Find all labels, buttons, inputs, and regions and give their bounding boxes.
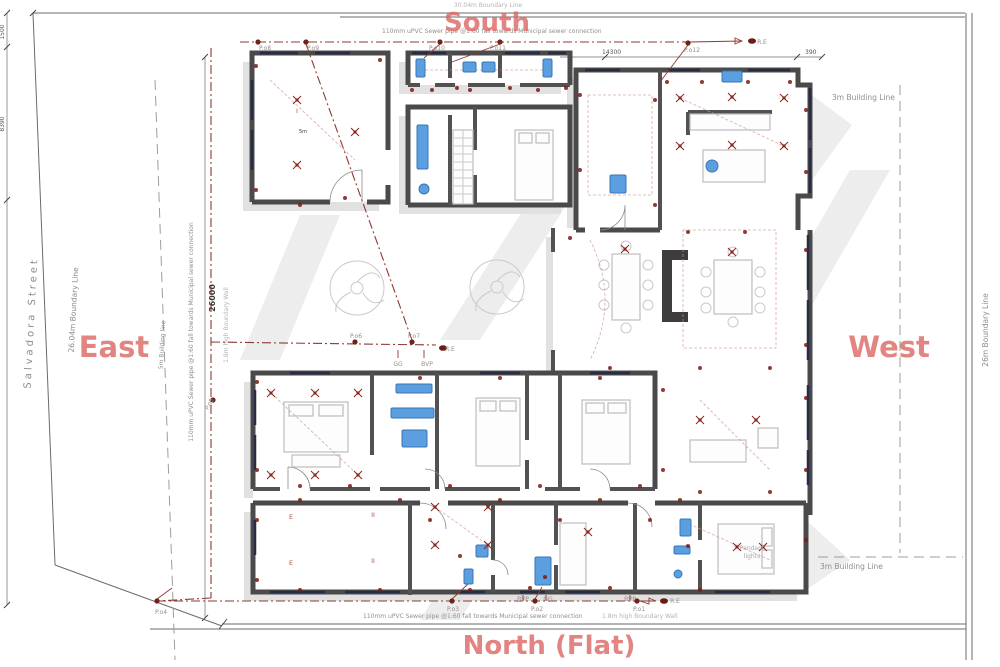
sewer-junction-dot [255,39,260,44]
building-line-left-label: 5m Building line [158,320,168,369]
outlet-symbol [255,518,259,522]
outlet-symbol [698,366,702,370]
outlet-symbol [528,586,532,590]
outlet-symbol [653,203,657,207]
plumbing-fixture [419,184,429,194]
outlet-symbol [430,88,434,92]
outlet-symbol [598,376,602,380]
outlet-symbol [804,396,808,400]
plumbing-fixture [706,160,718,172]
outlet-symbol [804,538,808,542]
compass-north-label: North (Flat) [463,631,636,661]
sewer-junction-dot [685,40,690,45]
armchair [758,428,778,448]
outlet-symbol [458,554,462,558]
plumbing-fixture [680,519,691,536]
sewer-point-label: GG [543,596,553,603]
dining-table [612,254,640,320]
plumbing-fixture [396,384,432,393]
outlet-symbol [255,468,259,472]
sewer-point-label: GG [393,361,403,368]
outlet-symbol [648,518,652,522]
outlet-symbol [678,498,682,502]
sewer-junction-dot [154,598,159,603]
sewer-junction-dot [352,339,357,344]
outlet-symbol [538,484,542,488]
outlet-symbol [661,388,665,392]
sewer-point-label: P.o10 [429,45,445,52]
outlet-symbol [638,484,642,488]
sewer-junction-dot [497,39,502,44]
outlet-symbol [686,544,690,548]
sewer-point-label: R.E [445,346,455,353]
outlet-symbol [468,588,472,592]
plumbing-fixture [463,62,476,72]
staircase [453,130,473,204]
boundary-right-label: 26m Boundary Line [981,293,990,367]
outlet-symbol [428,518,432,522]
outlet-symbol [254,188,258,192]
outlet-symbol [468,88,472,92]
outlet-symbol [558,518,562,522]
sewer-junction-dot [409,339,414,344]
sewer-point-label: BVP [421,361,433,368]
sewer-point-label: R.E [670,598,680,605]
plumbing-fixture [417,125,428,169]
outlet-symbol [254,64,258,68]
dim-8390: 8390 [0,116,6,131]
outlet-symbol [598,498,602,502]
outlet-symbol [543,575,547,579]
outlet-symbol [743,230,747,234]
outlet-symbol [378,58,382,62]
sewer-point-label: P.o8 [259,45,271,52]
outlet-symbol [298,588,302,592]
outlet-symbol [508,86,512,90]
sewer-point-label: BVP [517,596,529,603]
outlet-symbol [788,80,792,84]
plumbing-fixture [722,71,742,82]
plumbing-fixture [610,175,626,193]
sewer-point-label: R.E [757,39,767,46]
sewer-point-label: P.o6 [350,333,362,340]
building-line-right-top-label: 3m Building Line [832,93,895,102]
building-line-right-bottom-label: 3m Building Line [820,562,883,571]
boundary-wall-bottom-label: 1.8m high Boundary Wall [602,613,678,620]
plumbing-fixture [543,59,552,77]
outlet-symbol [608,586,612,590]
outlet-symbol [804,343,808,347]
outlet-symbol [298,203,302,207]
sewer-point-label: P.o1 [633,606,645,613]
plumbing-fixture [535,557,551,585]
outlet-symbol [568,236,572,240]
compass-south-label: South [444,8,530,38]
outlet-symbol [804,468,808,472]
pantry-counter [690,114,770,130]
outlet-symbol [398,498,402,502]
outlet-symbol [298,498,302,502]
sewer-point-label: P.o2 [531,606,543,613]
bed [476,398,520,466]
outlet-symbol [700,80,704,84]
rodding-eye-dot [660,598,668,604]
dim-1500: 1500 [0,24,6,39]
plumbing-fixture [464,569,473,584]
sewer-point-label: P.o11 [490,45,506,52]
room-mark: II [371,557,375,565]
plumbing-fixture [391,408,434,418]
sewer-junction-dot [449,598,454,603]
room-mark: I [296,107,298,115]
outlet-symbol [578,168,582,172]
outlet-symbol [378,588,382,592]
dim-26000: 26000 [208,284,217,312]
bed [582,400,630,464]
room-mark: E [289,513,293,521]
outlet-symbol [536,88,540,92]
outlet-symbol [746,80,750,84]
outlet-symbol [665,80,669,84]
sewer-point-label: P.o12 [684,47,700,54]
outlet-symbol [564,86,568,90]
sewer-point-label: BVP [624,596,636,603]
compass-east-label: East [79,330,150,364]
floor-plan-drawing: 1500 8390 26000 14300 390 [0,0,1000,667]
outlet-symbol [804,248,808,252]
sewer-point-label: P.o7 [408,333,420,340]
outlet-symbol [455,86,459,90]
patio-fan [330,261,384,315]
outlet-symbol [298,484,302,488]
outlet-symbol [768,366,772,370]
pendant-lights-label2: lights [744,553,760,560]
room-mark: E [289,559,293,567]
outlet-symbol [653,98,657,102]
dim-390: 390 [805,49,817,56]
sewer-junction-dot [303,39,308,44]
outlet-symbol [255,380,259,384]
sewer-point-label: P.o4 [155,609,167,616]
outlet-symbol [608,366,612,370]
boundary-wall-left-label: 1.8m high Boundary Wall [223,287,230,363]
plumbing-fixture [674,570,682,578]
room-mark: 5m [299,129,307,135]
plumbing-fixture [402,430,427,447]
sewer-point-label: P.o9 [307,45,319,52]
sofa [690,440,746,462]
outlet-symbol [498,376,502,380]
sewer-junction-dot [437,39,442,44]
sewer-point-label: P.o3 [447,606,459,613]
plumbing-fixture [482,62,495,72]
outlet-symbol [698,588,702,592]
outlet-symbol [804,108,808,112]
bed [284,402,348,467]
outlet-symbol [255,578,259,582]
sewer-note-left: 110mm uPVC Sewer pipe @1:60 fall towards… [188,222,195,442]
dim-14300: 14300 [602,49,621,56]
rodding-eye-dot [748,38,756,44]
outlet-symbol [578,93,582,97]
outlet-symbol [686,230,690,234]
outlet-symbol [661,468,665,472]
plumbing-fixture [416,59,425,77]
pendant-lights-label: Pendant [740,545,765,552]
outlet-symbol [418,376,422,380]
street-name-label: Salvadora Street [23,257,41,389]
sewer-junction-dot [532,598,537,603]
outlet-symbol [498,498,502,502]
outlet-symbol [348,484,352,488]
outlet-symbol [410,88,414,92]
outlet-symbol [343,196,347,200]
outlet-symbol [698,490,702,494]
outlet-symbol [804,170,808,174]
room-mark: II [371,511,375,519]
site-plan-canvas: 1500 8390 26000 14300 390 [0,0,1000,667]
outlet-symbol [768,490,772,494]
bed [515,130,553,200]
sewer-note-bottom: 110mm uPVC Sewer pipe @1:60 fall towards… [363,613,583,620]
bed [560,523,586,585]
dining-table [714,260,752,314]
outlet-symbol [448,484,452,488]
compass-west-label: West [848,330,930,364]
